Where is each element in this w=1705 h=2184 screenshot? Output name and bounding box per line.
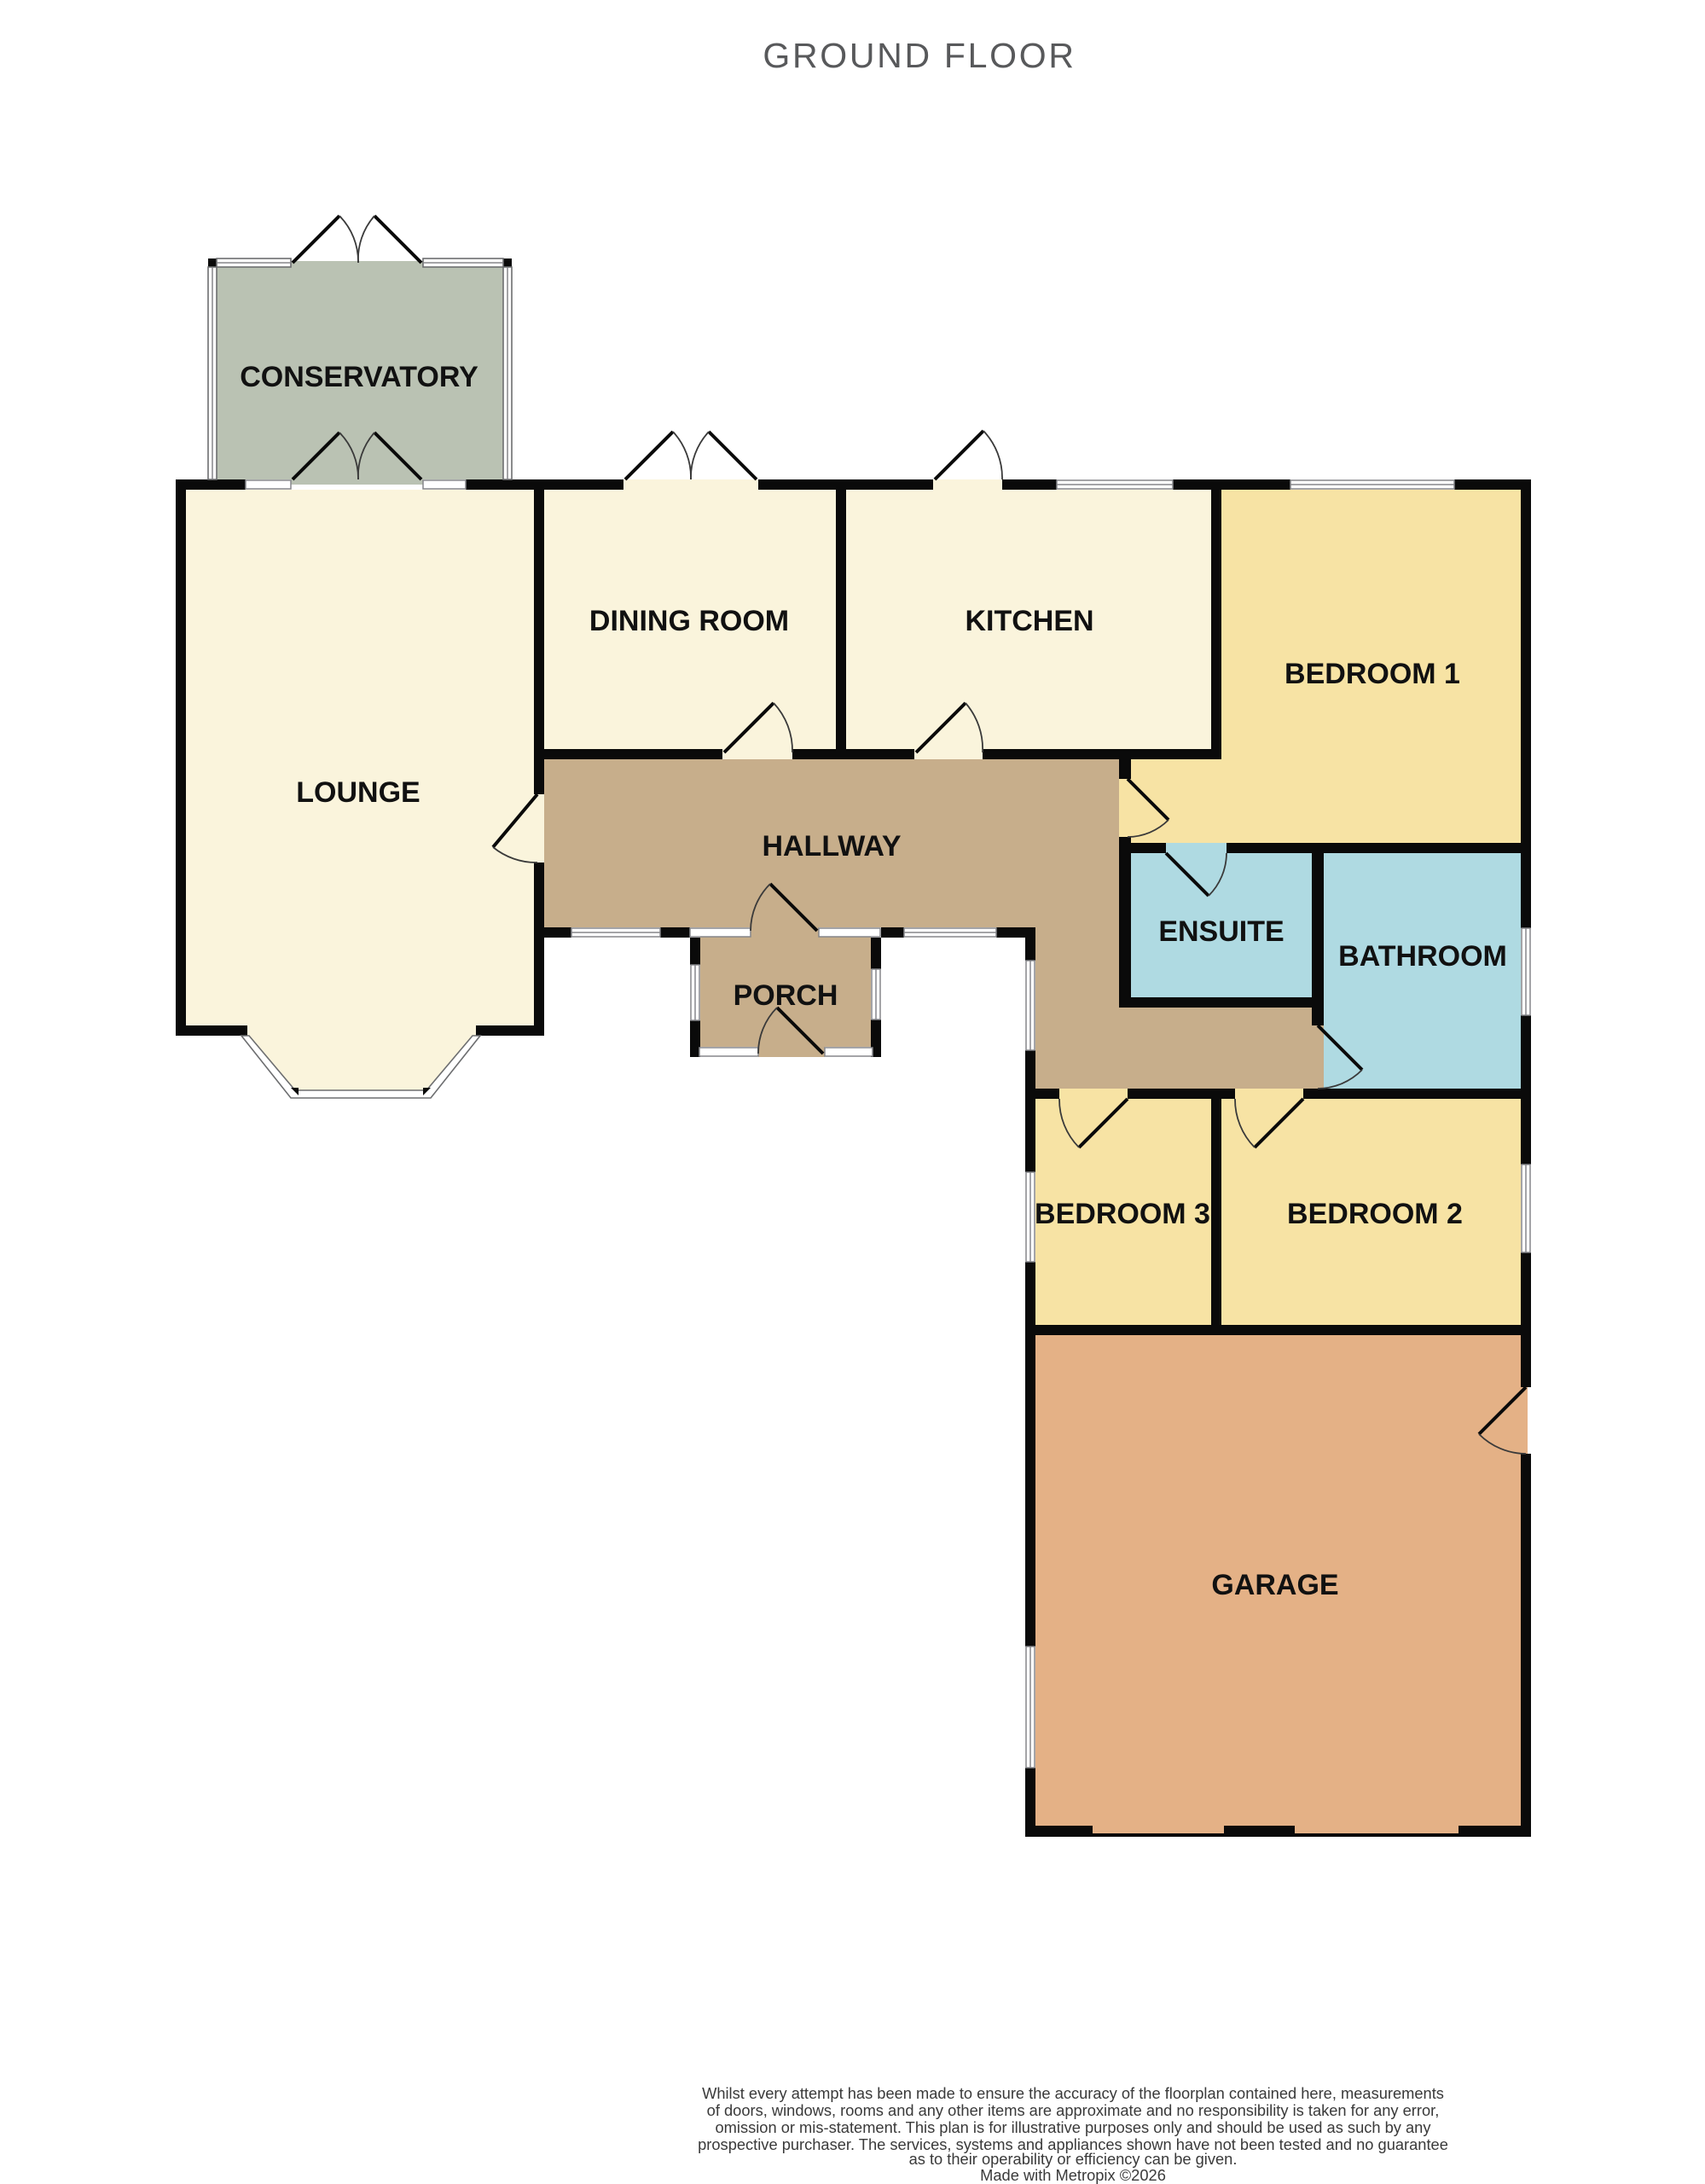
svg-text:KITCHEN: KITCHEN: [965, 605, 1093, 637]
svg-text:Made with Metropix ©2026: Made with Metropix ©2026: [980, 2166, 1166, 2184]
svg-text:omission or mis-statement. Thi: omission or mis-statement. This plan is …: [716, 2118, 1432, 2136]
svg-text:LOUNGE: LOUNGE: [296, 776, 420, 809]
svg-text:GROUND FLOOR: GROUND FLOOR: [763, 36, 1076, 75]
svg-text:DINING ROOM: DINING ROOM: [589, 605, 789, 637]
svg-text:BEDROOM 1: BEDROOM 1: [1285, 658, 1460, 690]
svg-text:PORCH: PORCH: [734, 979, 838, 1012]
svg-text:GARAGE: GARAGE: [1211, 1569, 1338, 1601]
svg-text:BEDROOM 3: BEDROOM 3: [1035, 1198, 1210, 1230]
svg-text:CONSERVATORY: CONSERVATORY: [240, 361, 478, 393]
svg-text:BEDROOM 2: BEDROOM 2: [1287, 1198, 1463, 1230]
svg-text:as to their operability or eff: as to their operability or efficiency ca…: [909, 2150, 1238, 2168]
svg-text:ENSUITE: ENSUITE: [1158, 915, 1284, 948]
svg-text:Whilst every attempt has been: Whilst every attempt has been made to en…: [702, 2084, 1444, 2102]
svg-text:of doors, windows, rooms and a: of doors, windows, rooms and any other i…: [707, 2101, 1440, 2119]
svg-text:BATHROOM: BATHROOM: [1338, 940, 1507, 973]
svg-text:HALLWAY: HALLWAY: [762, 830, 901, 863]
